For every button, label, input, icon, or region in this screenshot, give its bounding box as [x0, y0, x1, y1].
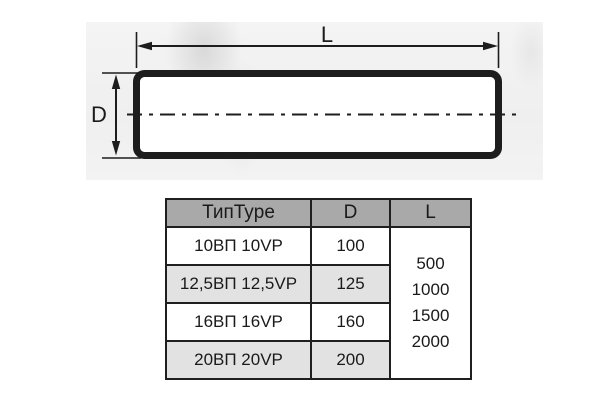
l-value: 1500 — [391, 303, 470, 329]
type-cell: 10ВП 10VP — [166, 227, 311, 265]
l-value: 1000 — [391, 277, 470, 303]
arrowhead-left-icon — [137, 42, 152, 50]
l-value: 2000 — [391, 329, 470, 355]
d-cell: 200 — [311, 341, 390, 379]
arrowhead-up-icon — [112, 75, 120, 90]
d-cell: 160 — [311, 303, 390, 341]
header-type: ТипType — [166, 199, 311, 227]
header-row: ТипType D L — [166, 199, 471, 227]
header-d: D — [311, 199, 390, 227]
header-l: L — [390, 199, 471, 227]
type-cell: 20ВП 20VP — [166, 341, 311, 379]
arrowhead-down-icon — [112, 141, 120, 156]
arrowhead-right-icon — [483, 42, 498, 50]
d-cell: 125 — [311, 265, 390, 303]
type-cell: 12,5ВП 12,5VP — [166, 265, 311, 303]
l-values-cell: 500 1000 1500 2000 — [390, 227, 471, 379]
diameter-label: D — [91, 102, 107, 127]
length-dimension: L — [137, 22, 499, 68]
table-row: 10ВП 10VP 100 500 1000 1500 2000 — [166, 227, 471, 265]
d-cell: 100 — [311, 227, 390, 265]
type-cell: 16ВП 16VP — [166, 303, 311, 341]
spec-table: ТипType D L 10ВП 10VP 100 500 1000 1500 … — [165, 198, 472, 380]
length-label: L — [321, 22, 333, 47]
l-value: 500 — [391, 251, 470, 277]
page: L D ТипType D L 10ВП 10VP 100 — [0, 0, 600, 400]
duct-diagram: L D — [0, 0, 600, 200]
